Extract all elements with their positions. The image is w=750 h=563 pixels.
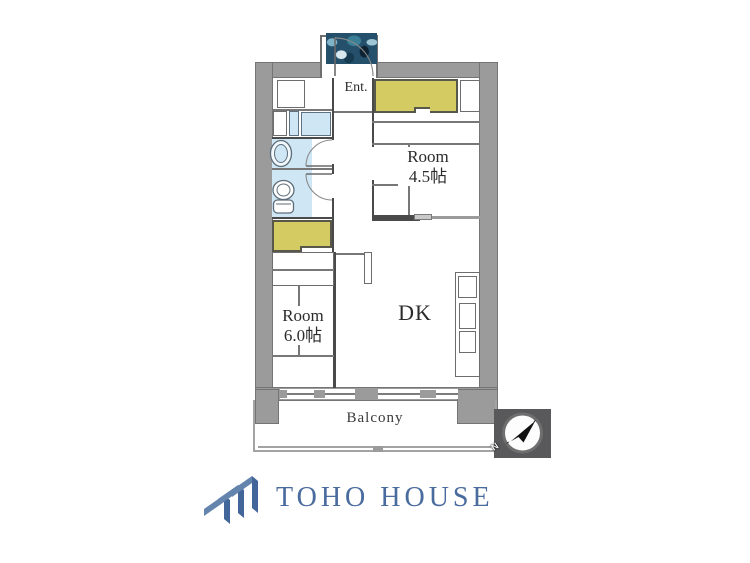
kitchen-cabinet	[459, 331, 476, 353]
entrance-step-line	[332, 111, 372, 113]
room45-label: Room 4.5帖	[398, 147, 458, 186]
balcony-drain-mark	[373, 446, 383, 452]
window-sash-3	[420, 390, 436, 398]
washbasin-strip	[289, 111, 299, 136]
toilet-room-floor	[272, 170, 312, 217]
toilet-wall-bottom	[272, 217, 332, 219]
room45-wall-left-a	[372, 113, 374, 147]
closet-top-door-notch	[414, 107, 430, 113]
window-sash-2	[314, 390, 325, 398]
balcony-label: Balcony	[330, 410, 420, 427]
bathroom-floor	[272, 139, 312, 168]
dk-label: DK	[390, 300, 440, 325]
room60-label: Room 6.0帖	[273, 306, 333, 345]
room60-tatami-line-h	[272, 355, 334, 357]
kitchen-sink	[459, 303, 476, 329]
washer-pan	[277, 80, 305, 108]
brand-logo-icon	[203, 476, 261, 530]
room45-sliding-door-overlap	[414, 214, 432, 220]
room45-name: Room	[407, 147, 449, 166]
room45-tatami-line-h1	[372, 143, 480, 145]
corridor-wall-seg-1	[332, 77, 334, 140]
meter-box	[460, 80, 480, 112]
room45-wall-bottom	[372, 215, 420, 221]
brand-name: TOHO HOUSE	[276, 482, 494, 514]
room60-name: Room	[282, 306, 324, 325]
wall-right	[480, 63, 497, 390]
room45-size: 4.5帖	[409, 167, 447, 186]
kitchen-stove	[458, 276, 477, 298]
closet-lower-door-notch	[300, 246, 332, 252]
dk-door-leaf	[364, 252, 372, 284]
wall-top-right	[374, 63, 497, 77]
room45-alcove-line	[372, 121, 480, 123]
corridor-wall-seg-3	[332, 198, 334, 253]
logo-chevron-3	[232, 476, 258, 513]
room45-wall-left-b	[372, 180, 374, 218]
entrance-label: Ent.	[336, 80, 376, 96]
photo-fragment	[326, 33, 377, 64]
washbasin-counter	[301, 112, 331, 136]
corridor-wall-seg-2	[332, 164, 334, 174]
room60-size: 6.0帖	[284, 326, 322, 345]
storage-box	[273, 111, 287, 136]
dk-threshold-line	[334, 253, 366, 255]
room60-closet-divider	[272, 269, 334, 271]
window-right-glass-line	[378, 393, 458, 395]
floorplan-canvas: Ent. Room 4.5帖 DK	[0, 0, 750, 563]
window-sash-1	[280, 390, 287, 398]
wall-left	[256, 63, 272, 390]
